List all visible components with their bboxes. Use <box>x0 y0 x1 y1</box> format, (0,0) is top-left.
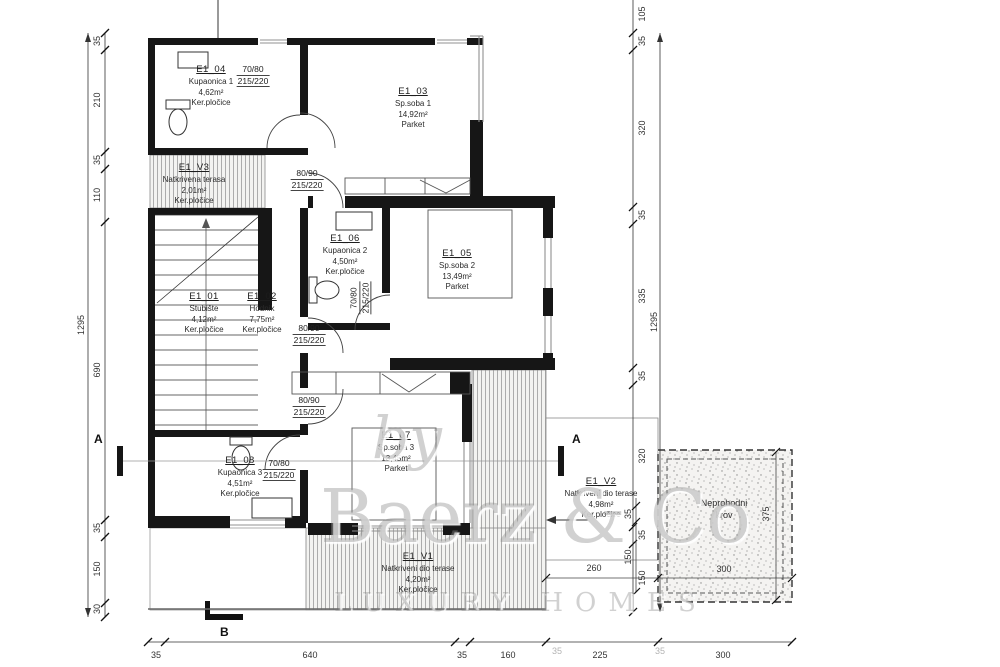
room-area: 4,51m² <box>218 479 262 489</box>
door-label-2: 70/80 215/220 <box>348 282 371 315</box>
room-label-e1-03: E1_03 Sp.soba 1 14,92m² Parket <box>395 86 431 131</box>
room-label-e1-v3: E1_V3 Natkrivena terasa 2,01m² Ker.ploči… <box>163 162 226 207</box>
dim-left-1: 210 <box>92 92 102 107</box>
door-height: 215/220 <box>293 407 326 419</box>
room-area: 13,45m² <box>378 454 414 464</box>
door-height: 215/220 <box>263 470 296 482</box>
roof-label-line2: krov <box>701 510 748 522</box>
room-name: Stubište <box>184 304 223 314</box>
dim-left-total: 1295 <box>76 315 86 335</box>
dim-right-4: 335 <box>637 288 647 303</box>
room-name: Sp.soba 1 <box>395 99 431 109</box>
dim-bottom-5: 300 <box>715 650 730 660</box>
room-label-roof: Neprohodni krov <box>701 498 748 521</box>
room-label-e1-v2: E1_V2 Natkriveni dio terase 4,98m² Ker.p… <box>565 476 638 521</box>
door-size: 80/90 <box>293 323 326 335</box>
room-area: 4,12m² <box>184 315 223 325</box>
room-name: Natkrivena terasa <box>163 175 226 185</box>
room-label-e1-02: E1_02 Hodnik 7,75m² Ker.pločice <box>242 291 281 336</box>
room-label-e1-04: E1_04 Kupaonica 1 4,62m² Ker.pločice <box>189 64 233 109</box>
room-floor: Parket <box>378 464 414 474</box>
room-floor: Parket <box>439 282 475 292</box>
room-name: Natkriveni dio terase <box>382 564 455 574</box>
room-area: 4,62m² <box>189 88 233 98</box>
room-id: E1_04 <box>189 64 233 76</box>
room-floor: Ker.pločice <box>218 489 262 499</box>
door-label-4: 80/90 215/220 <box>293 395 326 418</box>
room-id: E1_03 <box>395 86 431 98</box>
dim-bottom-faint-1: 35 <box>655 646 665 656</box>
dim-right-3: 35 <box>637 210 647 220</box>
room-area: 4,98m² <box>565 500 638 510</box>
room-area: 14,92m² <box>395 110 431 120</box>
room-label-e1-v1: E1_V1 Natkriveni dio terase 4,20m² Ker.p… <box>382 551 455 596</box>
dim-right-2: 320 <box>637 120 647 135</box>
room-name: Sp.soba 3 <box>378 443 414 453</box>
dim-right-1: 35 <box>637 36 647 46</box>
room-name: Sp.soba 2 <box>439 261 475 271</box>
door-height: 215/220 <box>291 180 324 192</box>
dim-left-0: 35 <box>92 36 102 46</box>
room-area: 4,20m² <box>382 575 455 585</box>
dim-roof-height: 375 <box>761 506 771 521</box>
door-label-1: 80/90 215/220 <box>291 168 324 191</box>
section-marker-b: B <box>220 625 229 639</box>
door-height: 215/220 <box>237 76 270 88</box>
room-floor: Ker.pločice <box>184 325 223 335</box>
room-id: E1_V3 <box>163 162 226 174</box>
dim-left-7: 30 <box>92 604 102 614</box>
room-id: E1_06 <box>323 233 367 245</box>
room-label-e1-06: E1_06 Kupaonica 2 4,50m² Ker.pločice <box>323 233 367 278</box>
dim-right-6: 320 <box>637 448 647 463</box>
room-label-e1-01: E1_01 Stubište 4,12m² Ker.pločice <box>184 291 223 336</box>
dim-bottom-4: 225 <box>592 650 607 660</box>
room-floor: Ker.pločice <box>323 267 367 277</box>
door-label-5: 70/80 215/220 <box>263 458 296 481</box>
door-label-0: 70/80 215/220 <box>237 64 270 87</box>
room-label-e1-08: E1_08 Kupaonica 3 4,51m² Ker.pločice <box>218 455 262 500</box>
dim-right-0: 105 <box>637 6 647 21</box>
dim-bottom-faint-0: 35 <box>552 646 562 656</box>
section-marker-a-right: A <box>572 432 581 446</box>
door-size: 70/80 <box>237 64 270 76</box>
door-size: 70/80 <box>348 282 360 315</box>
room-area: 4,50m² <box>323 257 367 267</box>
door-height: 215/220 <box>293 335 326 347</box>
room-floor: Ker.pločice <box>565 510 638 520</box>
room-id: E1_08 <box>218 455 262 467</box>
room-floor: Ker.pločice <box>189 98 233 108</box>
room-id: E1_05 <box>439 248 475 260</box>
room-id: E1_07 <box>378 430 414 442</box>
dim-right-7: 35 <box>637 530 647 540</box>
door-size: 80/90 <box>291 168 324 180</box>
room-name: Kupaonica 2 <box>323 246 367 256</box>
dim-bottom-2: 35 <box>457 650 467 660</box>
dim-bottom-3: 160 <box>500 650 515 660</box>
door-label-3: 80/90 215/220 <box>293 323 326 346</box>
room-floor: Ker.pločice <box>163 196 226 206</box>
room-area: 13,49m² <box>439 272 475 282</box>
dim-left-5: 35 <box>92 523 102 533</box>
dim-right-8: 150 <box>637 570 647 585</box>
floor-plan-page: E1_04 Kupaonica 1 4,62m² Ker.pločice E1_… <box>0 0 1000 667</box>
room-label-e1-07: E1_07 Sp.soba 3 13,45m² Parket <box>378 430 414 475</box>
dim-left-4: 690 <box>92 362 102 377</box>
room-name: Kupaonica 1 <box>189 77 233 87</box>
room-label-e1-05: E1_05 Sp.soba 2 13,49m² Parket <box>439 248 475 293</box>
section-marker-a-left: A <box>94 432 103 446</box>
dim-bottom-1: 640 <box>302 650 317 660</box>
dim-terrace-b: 150 <box>623 549 633 564</box>
floor-plan-drawing <box>0 0 1000 667</box>
room-id: E1_V2 <box>565 476 638 488</box>
room-floor: Parket <box>395 120 431 130</box>
room-floor: Ker.pločice <box>242 325 281 335</box>
dim-left-3: 110 <box>92 188 102 202</box>
dim-right-total: 1295 <box>649 312 659 332</box>
room-id: E1_01 <box>184 291 223 303</box>
door-size: 80/90 <box>293 395 326 407</box>
dim-left-2: 35 <box>92 155 102 165</box>
room-name: Kupaonica 3 <box>218 468 262 478</box>
room-name: Hodnik <box>242 304 281 314</box>
dim-bottom-0: 35 <box>151 650 161 660</box>
room-id: E1_02 <box>242 291 281 303</box>
room-name: Natkriveni dio terase <box>565 489 638 499</box>
room-area: 7,75m² <box>242 315 281 325</box>
roof-label-line1: Neprohodni <box>701 498 748 510</box>
room-floor: Ker.pločice <box>382 585 455 595</box>
dim-left-6: 150 <box>92 561 102 576</box>
dim-terrace-width: 260 <box>586 563 601 573</box>
dim-right-5: 35 <box>637 371 647 381</box>
door-size: 70/80 <box>263 458 296 470</box>
room-area: 2,01m² <box>163 186 226 196</box>
dim-roof-width: 300 <box>716 564 731 574</box>
room-id: E1_V1 <box>382 551 455 563</box>
door-height: 215/220 <box>360 282 372 315</box>
